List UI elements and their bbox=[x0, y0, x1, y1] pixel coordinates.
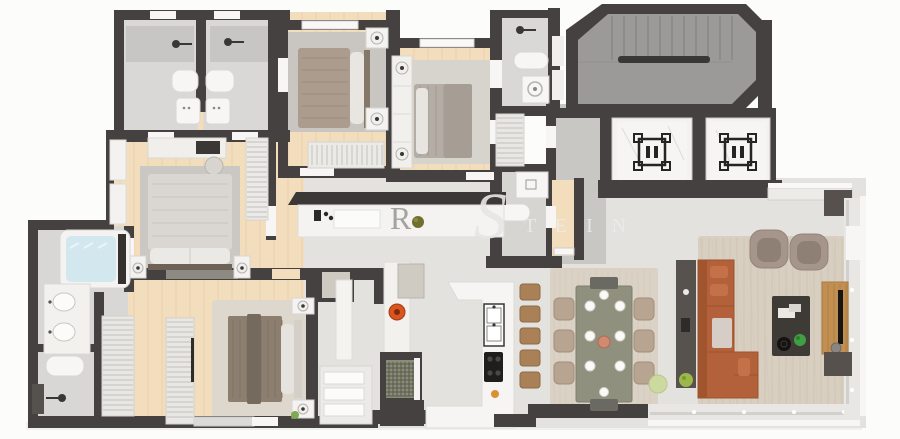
door-bedroom2-east bbox=[490, 60, 502, 88]
floor-plan-canvas bbox=[0, 0, 900, 439]
dining-chair-left-1 bbox=[554, 298, 574, 320]
master-closet-panel-1 bbox=[110, 140, 126, 180]
kitchen-sink-basin-2 bbox=[487, 326, 501, 341]
sofa-pillow-3 bbox=[738, 358, 750, 376]
master-lamp-right-dot bbox=[240, 266, 244, 270]
window-band-bottom-frame bbox=[650, 412, 846, 415]
console-plant bbox=[679, 373, 693, 387]
dining-chair-right-2 bbox=[634, 330, 654, 352]
kitchen-plant bbox=[412, 216, 424, 228]
closet-drawer-2 bbox=[324, 388, 364, 400]
vanity-bathB bbox=[206, 70, 234, 92]
bar-stool-5 bbox=[520, 372, 540, 388]
door-hall-lower bbox=[546, 206, 556, 228]
master-vanity-basin-1 bbox=[53, 293, 75, 311]
wall-entry-nook bbox=[574, 178, 584, 260]
vent-grate-vlines bbox=[389, 362, 413, 396]
dining-plate-top bbox=[600, 291, 609, 300]
master-lamp-left-dot bbox=[136, 266, 140, 270]
dining-centerpiece bbox=[598, 336, 610, 348]
door-balcony bbox=[846, 226, 860, 260]
kitchen-cabinet-band bbox=[298, 205, 504, 237]
sofa-throw-blanket bbox=[712, 318, 732, 348]
bedroom2-pillows bbox=[416, 88, 428, 154]
closet-drawer-3 bbox=[324, 404, 364, 416]
coffee-table-plant-dot bbox=[796, 336, 800, 340]
bedroom4-window bbox=[194, 417, 254, 426]
bedroom4-lamp-top-dot bbox=[301, 304, 305, 308]
elevator2-marble-floor bbox=[710, 122, 766, 182]
sofa-back-cushions bbox=[698, 260, 707, 398]
stair-niche-shelf-2 bbox=[552, 70, 564, 100]
living-top-window-sill bbox=[768, 183, 852, 188]
wall-bathAB-divider bbox=[196, 16, 206, 112]
vanity-bathA bbox=[172, 70, 198, 92]
coffee-table-magazine-2 bbox=[789, 304, 801, 312]
bedroom4-headboard bbox=[294, 320, 302, 398]
dining-chair-left-3 bbox=[554, 362, 574, 384]
bedroom1-bench-stripes bbox=[312, 145, 382, 165]
bathtub-control-panel bbox=[118, 234, 126, 284]
bar-stool-4 bbox=[520, 350, 540, 366]
bedroom2-lamp-bottom-dot bbox=[400, 152, 404, 156]
bedroom4-throw bbox=[247, 314, 261, 404]
coffee-table-plant bbox=[794, 334, 806, 346]
master-wardrobe bbox=[246, 138, 268, 220]
bedroom1-bench bbox=[308, 142, 384, 168]
bedroom1-window bbox=[302, 21, 358, 29]
door-bedroom1-bottom bbox=[300, 168, 334, 176]
closet-drawer-1 bbox=[324, 372, 364, 384]
wall-closet-east bbox=[374, 268, 384, 304]
tv-screen bbox=[838, 290, 843, 344]
console-book bbox=[681, 318, 690, 332]
door-hall-upper bbox=[546, 126, 556, 148]
kitchen-decor-bowl bbox=[491, 390, 499, 398]
door-bedroom2-bottom bbox=[466, 172, 494, 180]
closet-tall-cabinet bbox=[336, 280, 352, 360]
tv-cabinet-bottom bbox=[824, 352, 852, 376]
kitchen-plant-highlight bbox=[414, 218, 418, 222]
bar-stool-3 bbox=[520, 328, 540, 344]
dining-chair-left-2 bbox=[554, 330, 574, 352]
bathB-shower bbox=[210, 26, 272, 62]
master-desk-chair bbox=[205, 157, 223, 175]
armchair-2-seat bbox=[797, 241, 821, 264]
bedroom1-pillows bbox=[350, 52, 364, 124]
opening-corridor-wood bbox=[272, 269, 300, 279]
sliding-wardrobe-doors bbox=[166, 270, 238, 279]
master-shower-mat bbox=[32, 384, 44, 414]
vent-trim bbox=[414, 358, 420, 400]
wall-below-elevators bbox=[598, 180, 782, 198]
wall-service-top bbox=[490, 10, 556, 18]
bath3-toilet bbox=[514, 52, 548, 69]
coffee-table-tray bbox=[777, 337, 791, 351]
armchair-1-seat bbox=[757, 238, 781, 262]
sofa-pillow-1 bbox=[710, 266, 728, 278]
wall-core-right bbox=[758, 20, 772, 112]
window-band-right-sill bbox=[860, 196, 866, 416]
wall-bedroom1-left bbox=[278, 10, 288, 178]
wall-wing-top bbox=[28, 220, 114, 230]
window-band-corner bbox=[844, 404, 860, 420]
elevator1-ornament-bar-1 bbox=[646, 146, 650, 158]
pouf bbox=[649, 375, 667, 393]
tv-speaker bbox=[831, 343, 841, 353]
dining-bench-bottom bbox=[590, 399, 618, 411]
master-closet-panel-2 bbox=[110, 184, 126, 224]
console-plant-dot bbox=[682, 376, 686, 380]
bedroom4-wardrobe-left bbox=[102, 316, 134, 416]
wall-vent-base bbox=[380, 400, 424, 426]
floor-plan: R S T E I N bbox=[0, 0, 900, 439]
door-bathB-top bbox=[214, 11, 240, 19]
bedroom1-duvet bbox=[298, 48, 350, 128]
bedroom1-lamp-bottom-dot bbox=[375, 117, 379, 121]
wall-kitchen-bottom-right bbox=[494, 414, 536, 427]
elevator1-ornament-bar-2 bbox=[654, 146, 658, 158]
door-bathA-top bbox=[150, 11, 176, 19]
sofa-pillow-2 bbox=[710, 284, 728, 296]
stair-handrail bbox=[618, 56, 710, 63]
master-headboard bbox=[148, 264, 232, 270]
bar-stool-2 bbox=[520, 306, 540, 322]
console-decor bbox=[683, 289, 689, 295]
master-vanity-basin-2 bbox=[53, 323, 75, 341]
dining-plate-bottom bbox=[600, 388, 609, 397]
bedroom4-wardrobe-mid bbox=[166, 318, 194, 424]
bedroom4-lamp-bottom-dot bbox=[301, 407, 305, 411]
bedroom2-blanket bbox=[444, 84, 472, 158]
bedroom4-pillows bbox=[281, 324, 294, 394]
stair-niche-shelf-1 bbox=[552, 36, 564, 66]
bedroom4-wardrobe-handle bbox=[191, 338, 194, 382]
dining-chair-right-1 bbox=[634, 298, 654, 320]
washing-machine-dot bbox=[533, 87, 537, 91]
wall-bathA-left bbox=[114, 10, 124, 140]
master-toilet bbox=[46, 356, 84, 376]
elevator2-ornament-bar-2 bbox=[740, 146, 744, 158]
bedroom2-lamp-top-dot bbox=[400, 66, 404, 70]
bedroom1-lamp-top-dot bbox=[375, 36, 379, 40]
bedroom4-plant bbox=[291, 411, 299, 419]
toilet-bathB bbox=[206, 98, 230, 124]
decor-plate-center bbox=[394, 309, 400, 315]
master-laptop bbox=[196, 141, 220, 154]
elevator2-ornament-bar-1 bbox=[732, 146, 736, 158]
door-bedroom1-left bbox=[278, 58, 288, 92]
toilet-bathA bbox=[176, 98, 200, 124]
kitchen-kettle bbox=[314, 210, 321, 221]
kitchen-cutting-boards bbox=[334, 210, 380, 228]
kitchen-upper-cabinet bbox=[398, 264, 424, 298]
master-duvet bbox=[148, 174, 232, 250]
window-band-bottom-sill bbox=[648, 420, 860, 426]
kitchen-cooktop bbox=[484, 352, 503, 382]
elevator1-marble-floor bbox=[617, 122, 687, 182]
laundry-sink-cabinet bbox=[516, 172, 548, 198]
bar-stool-1 bbox=[520, 284, 540, 300]
kitchen-sink-basin-1 bbox=[487, 308, 501, 323]
kitchen-counter-top bbox=[296, 192, 506, 205]
door-bedroom4-bottom bbox=[252, 417, 278, 426]
bedroom2-window bbox=[420, 39, 474, 47]
front-door bbox=[554, 248, 574, 255]
dining-bench-top bbox=[590, 277, 618, 289]
bathtub-water bbox=[66, 236, 116, 282]
